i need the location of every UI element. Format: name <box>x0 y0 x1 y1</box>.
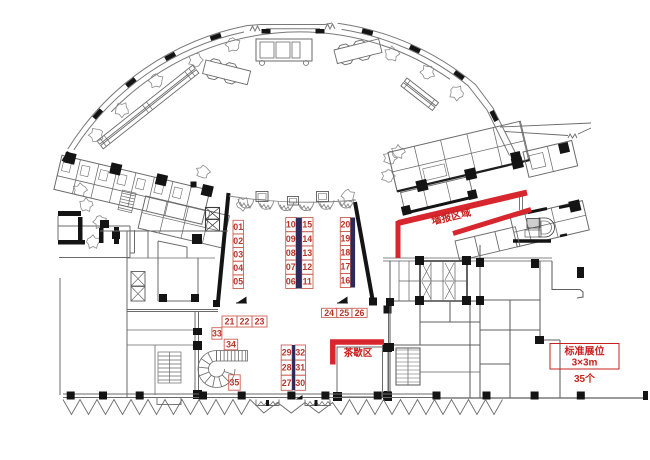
svg-text:01: 01 <box>233 222 243 232</box>
svg-text:17: 17 <box>341 262 351 272</box>
svg-text:茶歇区: 茶歇区 <box>343 347 373 359</box>
svg-text:02: 02 <box>233 236 243 246</box>
svg-text:21: 21 <box>225 317 235 327</box>
svg-text:25: 25 <box>339 308 349 318</box>
svg-text:20: 20 <box>341 220 351 230</box>
svg-text:08: 08 <box>286 248 296 258</box>
svg-text:10: 10 <box>286 220 296 230</box>
svg-text:23: 23 <box>255 317 265 327</box>
svg-text:18: 18 <box>341 248 351 258</box>
svg-text:09: 09 <box>286 234 296 244</box>
svg-text:30: 30 <box>295 378 305 388</box>
svg-text:22: 22 <box>240 317 250 327</box>
svg-text:04: 04 <box>233 263 243 273</box>
svg-text:11: 11 <box>303 276 312 286</box>
svg-text:06: 06 <box>286 276 296 286</box>
svg-text:29: 29 <box>282 348 292 358</box>
svg-text:07: 07 <box>286 262 296 272</box>
svg-text:34: 34 <box>226 340 236 350</box>
svg-text:27: 27 <box>282 378 292 388</box>
svg-text:13: 13 <box>302 248 312 258</box>
svg-text:31: 31 <box>295 363 305 373</box>
svg-text:19: 19 <box>341 234 351 244</box>
svg-text:24: 24 <box>324 308 334 318</box>
svg-text:32: 32 <box>295 348 305 358</box>
svg-text:标准展位: 标准展位 <box>564 345 605 358</box>
svg-text:3×3m: 3×3m <box>572 358 598 369</box>
svg-text:26: 26 <box>355 308 365 318</box>
svg-text:03: 03 <box>233 249 243 259</box>
svg-text:33: 33 <box>212 329 222 339</box>
svg-text:12: 12 <box>302 262 312 272</box>
svg-text:14: 14 <box>302 234 312 244</box>
svg-text:05: 05 <box>233 277 243 287</box>
svg-text:35个: 35个 <box>574 372 596 385</box>
svg-text:16: 16 <box>341 276 351 286</box>
svg-text:35: 35 <box>230 378 240 388</box>
svg-text:15: 15 <box>302 220 312 230</box>
svg-text:28: 28 <box>282 363 292 373</box>
